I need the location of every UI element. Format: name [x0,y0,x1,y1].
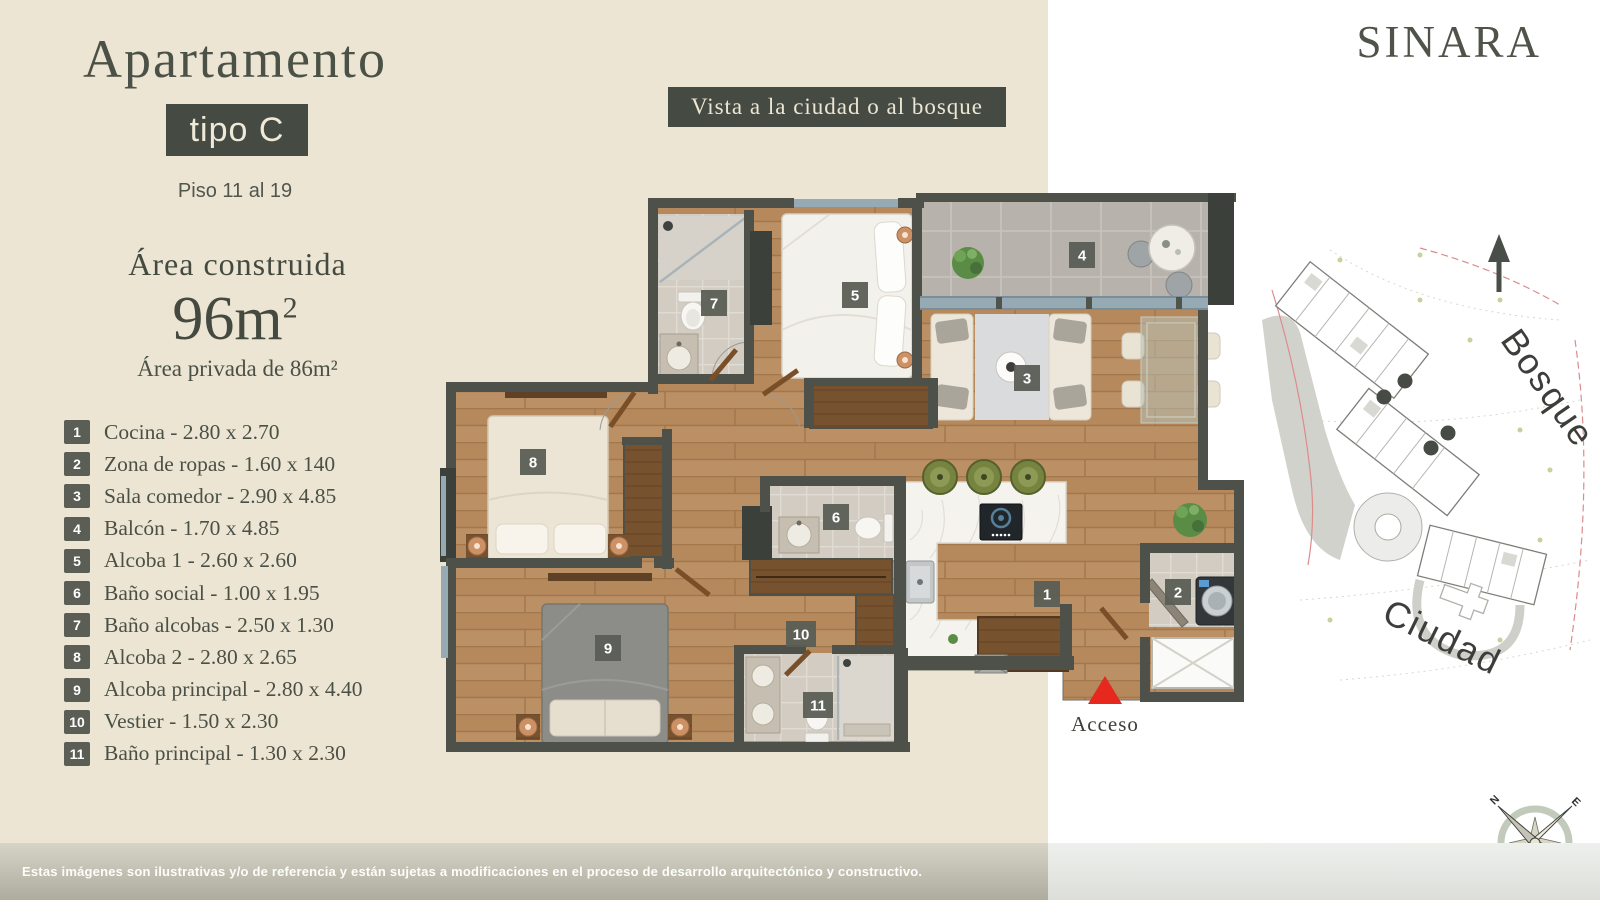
built-area-label: Área construida [0,246,475,283]
legend-item: 7Baño alcobas - 2.50 x 1.30 [64,609,363,641]
legend-item: 11Baño principal - 1.30 x 2.30 [64,738,363,770]
plan-room-badge: 8 [520,449,546,475]
legend-item: 9Alcoba principal - 2.80 x 4.40 [64,674,363,706]
legend-item-label: Zona de ropas - 1.60 x 140 [104,452,335,477]
legend-item: 6Baño social - 1.00 x 1.95 [64,577,363,609]
apartment-type-badge: tipo C [166,104,308,156]
svg-text:10: 10 [793,627,810,644]
legend-item-number: 6 [64,581,90,605]
legend-item-number: 4 [64,517,90,541]
legend-item-number: 3 [64,484,90,508]
legend-item-number: 2 [64,452,90,476]
plan-room-badge: 11 [803,692,833,718]
brand-logo: SINARA [1356,16,1542,68]
site-roundabout-center [1375,514,1401,540]
bed-principal [516,604,692,744]
svg-text:3: 3 [1023,371,1031,388]
legend-item-label: Vestier - 1.50 x 2.30 [104,709,278,734]
svg-text:1: 1 [1043,587,1051,604]
legend-item-label: Alcoba principal - 2.80 x 4.40 [104,677,363,702]
svg-text:8: 8 [529,455,537,472]
legend-item: 2Zona de ropas - 1.60 x 140 [64,448,363,480]
legend-item-label: Alcoba 1 - 2.60 x 2.60 [104,548,297,573]
closet-alcoba1 [810,384,932,428]
legend-item-label: Sala comedor - 2.90 x 4.85 [104,484,336,509]
legend-item-label: Alcoba 2 - 2.80 x 2.65 [104,645,297,670]
legend-item-label: Baño principal - 1.30 x 2.30 [104,741,346,766]
plan-room-badge: 4 [1069,242,1095,268]
plan-room-badge: 1 [1034,581,1060,607]
plan-room-badge: 6 [823,504,849,530]
legend-item: 5Alcoba 1 - 2.60 x 2.60 [64,545,363,577]
site-plan: Bosque Ciudad [1250,225,1600,705]
tv-console-principal [548,573,652,581]
legend-item-label: Balcón - 1.70 x 4.85 [104,516,280,541]
plan-room-badge: 3 [1014,365,1040,391]
floor-range-label: Piso 11 al 19 [0,180,470,203]
legend-item-number: 8 [64,645,90,669]
svg-text:4: 4 [1078,248,1087,265]
indoor-plant [1173,503,1207,537]
svg-text:5: 5 [851,288,859,305]
svg-text:6: 6 [832,510,840,527]
legend-item-number: 11 [64,742,90,766]
forest-label: Bosque [1493,321,1600,454]
footer-disclaimer-text: Estas imágenes son ilustrativas y/o de r… [22,864,922,879]
legend-item: 8Alcoba 2 - 2.80 x 2.65 [64,641,363,673]
north-arrow-icon [1488,234,1510,292]
built-area-value: 96m2 [0,284,470,355]
compass-point-n: N [1488,793,1502,807]
legend-item-label: Baño social - 1.00 x 1.95 [104,581,320,606]
legend-list: 1Cocina - 2.80 x 2.702Zona de ropas - 1.… [64,416,363,770]
svg-text:9: 9 [604,641,612,658]
plan-room-badge: 7 [701,290,727,316]
washing-machine [1196,577,1238,625]
footer-bar-right [1048,843,1600,900]
entry-doormat [1152,638,1234,688]
page-title: Apartamento [0,28,470,90]
svg-text:11: 11 [810,698,826,715]
floor-plan: 1234567891011 Acceso [430,190,1260,765]
plan-room-badge: 9 [595,635,621,661]
bed-alcoba2 [466,416,630,562]
legend-item-number: 10 [64,710,90,734]
legend-item-number: 5 [64,549,90,573]
legend-item: 10Vestier - 1.50 x 2.30 [64,706,363,738]
footer-disclaimer-bar: Estas imágenes son ilustrativas y/o de r… [0,843,1048,900]
apartment-type-label: tipo C [190,111,285,150]
legend-item-number: 1 [64,420,90,444]
legend-item-number: 7 [64,613,90,637]
view-badge-label: Vista a la ciudad o al bosque [691,94,983,120]
plan-room-badge: 2 [1165,579,1191,605]
plan-room-badge: 10 [786,621,816,647]
living-room-furniture [931,314,1091,420]
access-label: Acceso [1071,712,1139,736]
legend-item-label: Cocina - 2.80 x 2.70 [104,420,280,445]
view-badge: Vista a la ciudad o al bosque [668,87,1006,127]
legend-item-label: Baño alcobas - 2.50 x 1.30 [104,613,334,638]
legend-item: 3Sala comedor - 2.90 x 4.85 [64,480,363,512]
counter-plant-pots [923,460,1045,494]
svg-text:7: 7 [710,296,718,313]
legend-item: 1Cocina - 2.80 x 2.70 [64,416,363,448]
svg-text:2: 2 [1174,585,1182,602]
private-area-label: Área privada de 86m² [0,356,475,382]
legend-item: 4Balcón - 1.70 x 4.85 [64,513,363,545]
legend-item-number: 9 [64,678,90,702]
plan-room-badge: 5 [842,282,868,308]
